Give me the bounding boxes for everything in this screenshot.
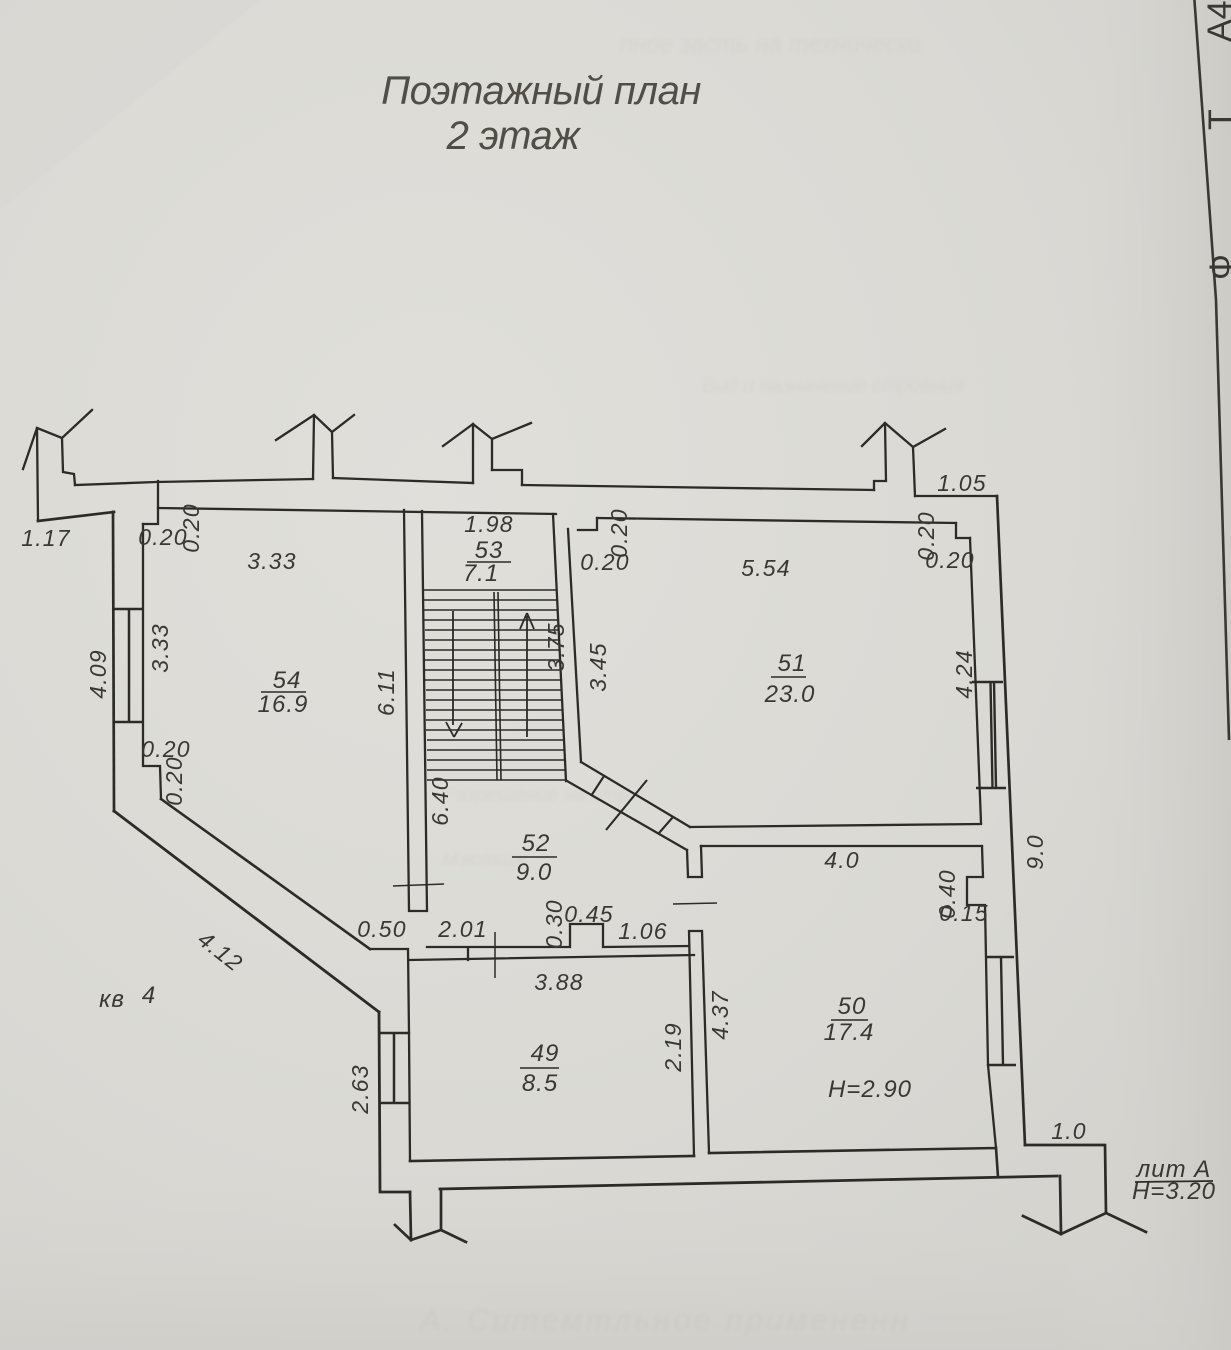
svg-text:0.20: 0.20: [925, 547, 975, 573]
svg-text:3.45: 3.45: [585, 642, 611, 692]
svg-text:7.1: 7.1: [463, 560, 499, 587]
svg-text:9.0: 9.0: [516, 859, 552, 886]
svg-text:3.33: 3.33: [147, 623, 173, 673]
svg-text:6.40: 6.40: [427, 776, 453, 826]
svg-text:1.98: 1.98: [464, 511, 514, 537]
svg-text:А4: А4: [1201, 0, 1231, 42]
svg-text:Т: Т: [1202, 109, 1231, 130]
svg-text:3.33: 3.33: [247, 548, 297, 574]
svg-text:51: 51: [778, 650, 807, 677]
svg-text:кв: кв: [99, 986, 125, 1013]
svg-text:6.11: 6.11: [373, 668, 399, 716]
svg-text:8.5: 8.5: [522, 1070, 558, 1097]
svg-text:Разрешение на стр: Разрешение на стр: [442, 784, 629, 806]
svg-text:1.05: 1.05: [937, 470, 987, 496]
svg-text:2 этаж: 2 этаж: [446, 114, 582, 158]
svg-text:3.88: 3.88: [534, 969, 584, 995]
svg-text:Ф: Ф: [1203, 254, 1231, 280]
svg-text:Вид и назначение строения: Вид и назначение строения: [702, 375, 965, 397]
svg-text:50: 50: [838, 993, 867, 1020]
svg-text:23.0: 23.0: [764, 681, 816, 708]
svg-text:16.9: 16.9: [258, 691, 309, 718]
svg-text:0.15: 0.15: [939, 900, 989, 926]
svg-text:4.24: 4.24: [951, 649, 977, 699]
svg-text:3.75: 3.75: [543, 622, 569, 672]
svg-text:9.0: 9.0: [1022, 834, 1048, 870]
svg-text:0.20: 0.20: [580, 549, 630, 575]
svg-text:17.4: 17.4: [824, 1019, 875, 1046]
svg-text:0.20: 0.20: [178, 503, 204, 553]
svg-text:54: 54: [273, 667, 302, 694]
svg-text:5.54: 5.54: [741, 555, 791, 581]
svg-text:4.09: 4.09: [85, 649, 111, 699]
svg-text:1.06: 1.06: [618, 918, 668, 944]
svg-text:Поэтажный план: Поэтажный план: [381, 69, 701, 113]
svg-text:0.20: 0.20: [161, 756, 187, 806]
svg-text:H=2.90: H=2.90: [828, 1076, 912, 1103]
svg-text:2.19: 2.19: [660, 1022, 686, 1073]
svg-text:0.45: 0.45: [564, 901, 614, 927]
svg-text:2.63: 2.63: [347, 1064, 373, 1115]
svg-text:пное засть на технически: пное засть на технически: [620, 31, 922, 58]
svg-text:52: 52: [522, 830, 551, 857]
svg-text:49: 49: [531, 1040, 560, 1067]
svg-text:0.50: 0.50: [357, 916, 407, 942]
svg-text:4.0: 4.0: [824, 847, 860, 873]
svg-text:1.0: 1.0: [1051, 1118, 1087, 1144]
svg-text:4.37: 4.37: [707, 990, 733, 1040]
svg-text:0.30: 0.30: [541, 899, 567, 949]
svg-text:4: 4: [142, 982, 156, 1009]
svg-text:1.17: 1.17: [21, 525, 71, 551]
svg-text:2.01: 2.01: [437, 916, 488, 942]
svg-text:H=3.20: H=3.20: [1132, 1178, 1216, 1205]
svg-text:А. Ситемтльное примененн: А. Ситемтльное примененн: [418, 1302, 911, 1337]
